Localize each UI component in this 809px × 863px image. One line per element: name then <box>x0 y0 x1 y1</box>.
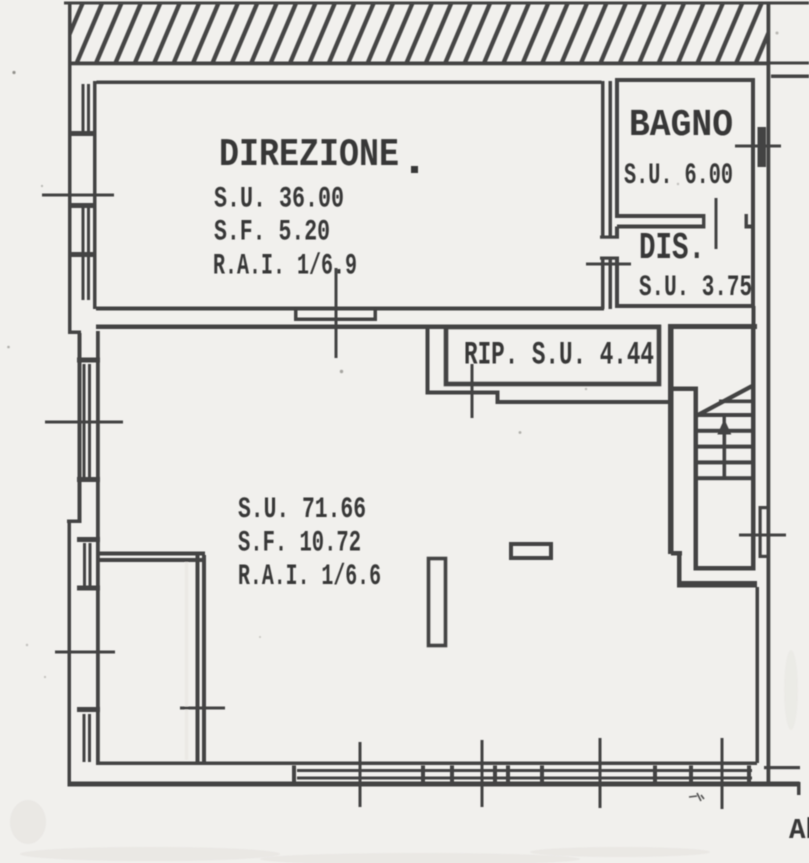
svg-text:S.U. 6.00: S.U. 6.00 <box>624 159 733 193</box>
svg-text:BAGNO: BAGNO <box>629 104 733 147</box>
svg-text:R.A.I. 1/6.6: R.A.I. 1/6.6 <box>238 560 381 594</box>
svg-text:DIS.: DIS. <box>639 227 705 270</box>
svg-text:S.U. 36.00: S.U. 36.00 <box>214 182 344 216</box>
svg-text:Ab: Ab <box>789 814 809 847</box>
svg-text:S.U. 3.75: S.U. 3.75 <box>639 271 752 305</box>
svg-text:S.F. 5.20: S.F. 5.20 <box>214 215 330 249</box>
svg-text:S.U. 71.66: S.U. 71.66 <box>238 493 366 527</box>
svg-text:DIREZIONE: DIREZIONE <box>219 133 399 177</box>
svg-text:RIP. S.U. 4.44: RIP. S.U. 4.44 <box>464 337 654 374</box>
svg-text:R.A.I. 1/6.9: R.A.I. 1/6.9 <box>213 249 357 283</box>
svg-text:S.F. 10.72: S.F. 10.72 <box>238 527 361 561</box>
